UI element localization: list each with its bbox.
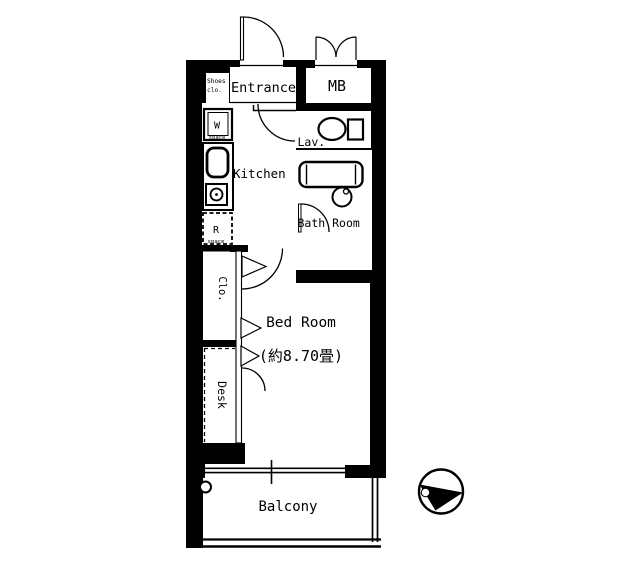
mb-doorway — [315, 60, 357, 68]
north-arrow-icon — [419, 470, 463, 514]
entrance-doorway — [240, 60, 283, 68]
bedroom-label: Bed Room — [266, 315, 336, 331]
stove-icon — [206, 184, 227, 205]
bathtub-icon — [300, 162, 363, 187]
fridge-space-sublabel: space — [208, 239, 225, 245]
bathroom-label: Bath Room — [298, 216, 360, 230]
floor-plan: Shoes clo. Entrance MB Lav. Kitchen Bath… — [0, 0, 640, 569]
balcony-drain-icon — [200, 482, 211, 493]
entrance-door-icon — [241, 17, 284, 60]
lavatory-label: Lav. — [298, 135, 326, 149]
bedroom-size-label: (約8.70畳) — [259, 347, 343, 365]
shoes-closet-label-line1: Shoes — [207, 78, 226, 85]
shoes-closet-label-line2: clo. — [207, 87, 222, 94]
washer-space-sublabel: space — [209, 135, 226, 141]
fridge-space-label: R — [213, 225, 220, 236]
closet-label: Clo. — [216, 276, 228, 301]
kitchen-label: Kitchen — [233, 166, 286, 181]
floor-plan-svg: Shoes clo. Entrance MB Lav. Kitchen Bath… — [0, 0, 640, 569]
wash-basin-icon — [333, 188, 352, 207]
entrance-label: Entrance — [231, 80, 296, 96]
meter-box-label: MB — [328, 77, 346, 95]
balcony-label: Balcony — [258, 499, 317, 515]
desk-label: Desk — [215, 381, 229, 409]
mb-double-door-icon — [316, 37, 356, 60]
washer-space-label: W — [214, 121, 221, 132]
kitchen-sink-icon — [207, 148, 228, 177]
